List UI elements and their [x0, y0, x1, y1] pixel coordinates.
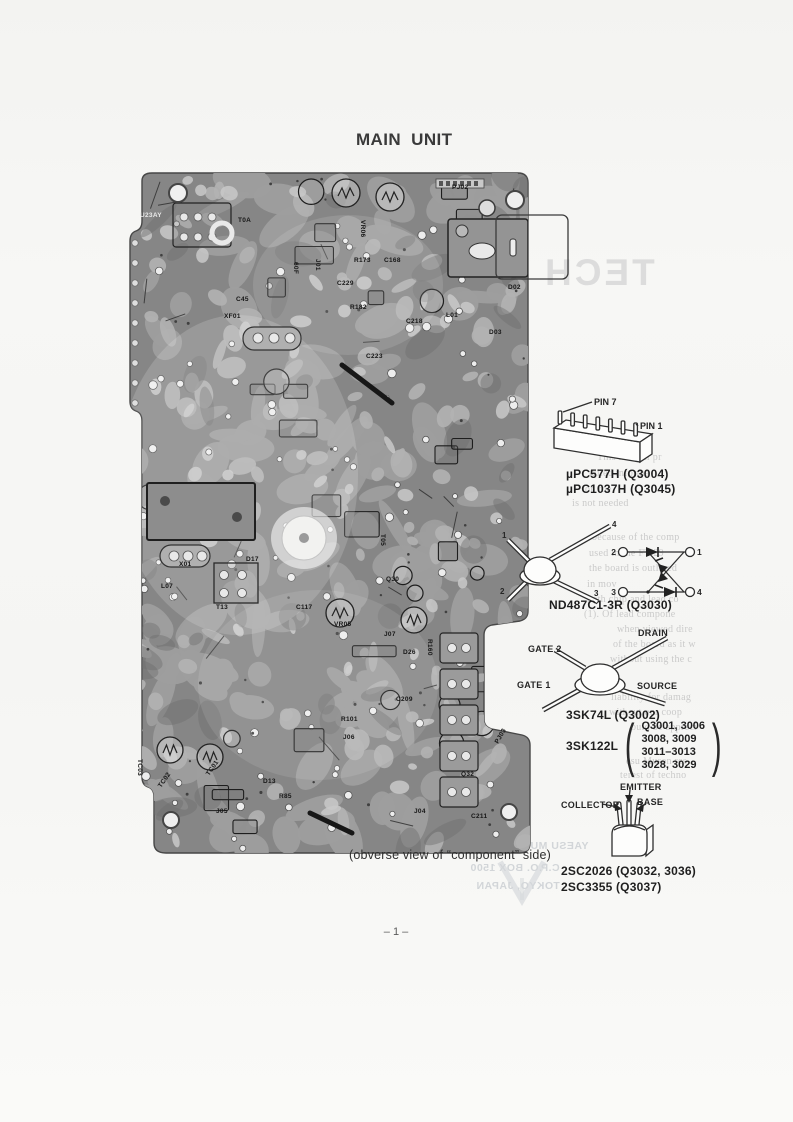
silkscreen-label: D13: [263, 778, 276, 785]
mounting-hole: [169, 184, 187, 202]
silkscreen-label: PJ02: [452, 184, 468, 191]
trimpot: [376, 183, 404, 211]
silkscreen-label: C117: [296, 604, 312, 611]
silkscreen-label: J05: [216, 808, 228, 815]
fet-ref-line: 3008, 3009: [641, 733, 705, 746]
dip-pad-column: [440, 633, 478, 807]
silkscreen-label: D02: [508, 284, 521, 291]
silkscreen-label: R182: [350, 304, 367, 311]
pkg-pin1: 1: [502, 531, 507, 540]
scanned-page: TECH This manual prtailed informaon thei…: [0, 0, 793, 1122]
silkscreen-label: L07: [161, 583, 173, 590]
page-number: – 1 –: [368, 926, 424, 938]
silkscreen-label: J07: [384, 631, 396, 638]
silkscreen-label: D26: [403, 649, 416, 656]
mounting-hole: [501, 804, 517, 820]
silkscreen-label: X01: [179, 561, 192, 568]
bleedthrough-text-line: is not needed: [572, 498, 629, 509]
sip-pin1-label: PIN 1: [640, 421, 663, 431]
sip-caption-2: µPC1037H (Q3045): [566, 482, 676, 496]
silkscreen-label: TC03: [136, 759, 143, 776]
bjt-caption-2: 2SC3355 (Q3037): [561, 880, 661, 894]
silkscreen-label: Q32: [461, 771, 474, 778]
sip-package-diagram: PIN 7 PIN 1: [540, 388, 710, 468]
silkscreen-label: T0A: [238, 217, 251, 224]
silkscreen-label: J01: [314, 259, 321, 271]
bjt-emitter-label: EMITTER: [620, 782, 662, 792]
silkscreen-label: C229: [337, 280, 354, 287]
silkscreen-label: L01: [446, 312, 458, 319]
fet-part2-label: 3SK122L: [566, 739, 618, 753]
page-title: MAIN UNIT: [356, 130, 452, 150]
board-caption: (obverse view of “component” side): [338, 848, 562, 862]
diode-caption: ND487C1-3R (Q3030): [549, 598, 672, 612]
metal-can: [147, 483, 255, 540]
silkscreen-label: XF01: [224, 313, 241, 320]
fet-caption-2: 3SK122L ( Q3001, 30063008, 30093011–3013…: [566, 719, 726, 773]
silkscreen-label: C223: [366, 353, 383, 360]
trimpot: [157, 737, 183, 763]
pkg-pin2: 2: [500, 587, 505, 596]
fet-ref-line: Q3001, 3006: [641, 720, 705, 733]
silkscreen-label: D17: [246, 556, 259, 563]
sch-pin3: 3: [611, 587, 616, 597]
silkscreen-label: C211: [471, 813, 487, 820]
silkscreen-label: T05: [379, 534, 386, 546]
silkscreen-label: VR05: [334, 621, 352, 628]
edge-pad-strip: [132, 240, 138, 406]
fet-ref-line: 3028, 3029: [641, 759, 705, 772]
pkg-pin3: 3: [594, 589, 599, 598]
diode-package: 1 4 2 3: [500, 520, 617, 602]
silkscreen-label: C168: [384, 257, 401, 264]
fet-ref-line: 3011–3013: [641, 746, 705, 759]
silkscreen-label: VR06: [359, 220, 366, 238]
silkscreen-label: R101: [341, 716, 358, 723]
fet-gate1-label: GATE 1: [517, 680, 551, 690]
silkscreen-label: J06: [343, 734, 355, 741]
sch-pin4: 4: [697, 587, 702, 597]
silkscreen-label: T13: [216, 604, 228, 611]
sch-pin2: 2: [611, 547, 616, 557]
fet-drain-label: DRAIN: [638, 628, 668, 638]
silkscreen-label: U23AY: [140, 212, 162, 219]
paren-close: ): [712, 719, 722, 773]
silkscreen-label: C209: [396, 696, 413, 703]
fet-gate2-label: GATE 2: [528, 644, 562, 654]
bjt-base-label: BASE: [637, 797, 663, 807]
pkg-pin4: 4: [612, 520, 617, 529]
bjt-collector-label: COLLECTOR: [561, 800, 620, 810]
silkscreen-label: R160: [426, 639, 433, 656]
sch-pin1: 1: [697, 547, 702, 557]
silkscreen-label: R85: [279, 793, 292, 800]
silkscreen-label: D03: [489, 329, 502, 336]
sip-pin7-label: PIN 7: [594, 397, 617, 407]
silkscreen-label: J04: [414, 808, 426, 815]
diode-schematic: 2 3 1 4: [611, 547, 702, 597]
mounting-hole: [163, 812, 179, 828]
silkscreen-label: C45: [236, 296, 249, 303]
fet-source-label: SOURCE: [637, 681, 677, 691]
mounting-hole: [506, 191, 524, 209]
bleedthrough-logo: [496, 858, 548, 906]
bjt-caption-1: 2SC2026 (Q3032, 3036): [561, 864, 696, 878]
silkscreen-label: Q30: [386, 576, 399, 583]
transformer-t13: [214, 563, 258, 603]
trimpot: [401, 607, 427, 633]
silkscreen-label: 60F: [292, 262, 299, 274]
silkscreen-label: C218: [406, 318, 423, 325]
pcb-photo: PJ02U23AYT0AVR06J0160FR173C168C229R182C2…: [118, 165, 578, 860]
sip-caption-1: µPC577H (Q3004): [566, 467, 669, 481]
silkscreen-label: R173: [354, 257, 371, 264]
fet-ref-list: Q3001, 30063008, 30093011–30133028, 3029: [641, 720, 705, 772]
trimpot: [332, 179, 360, 207]
paren-open: (: [625, 719, 635, 773]
